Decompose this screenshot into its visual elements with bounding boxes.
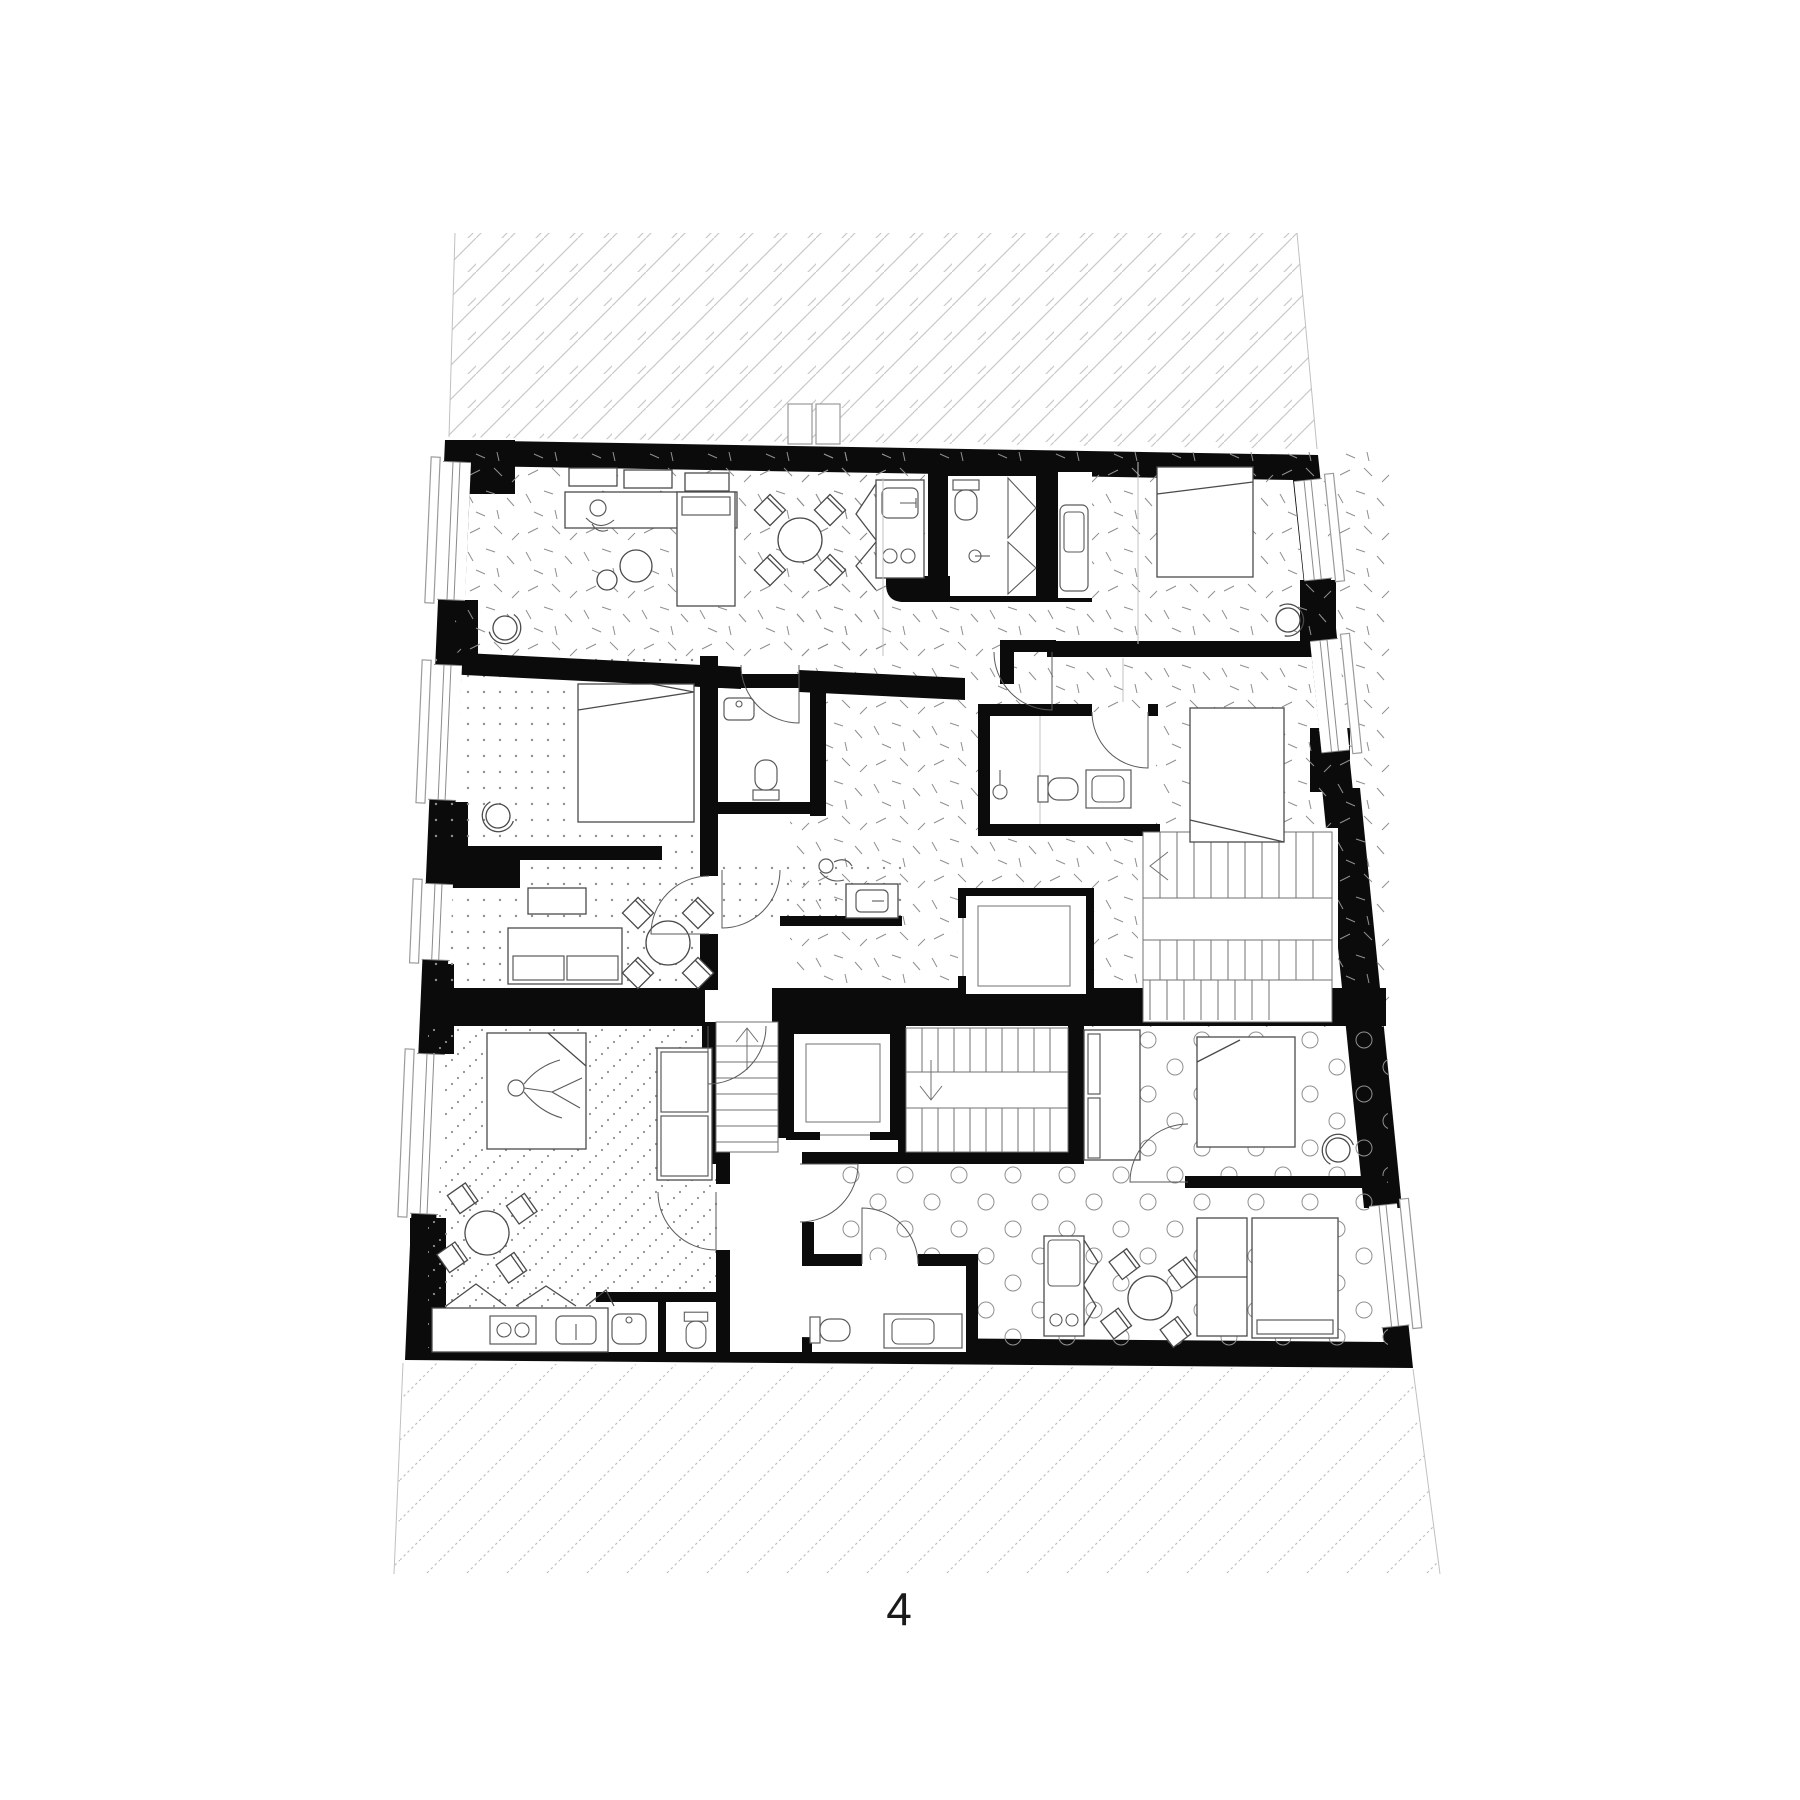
site-hatch-top <box>449 233 1317 449</box>
window-balcony <box>398 1049 445 1219</box>
vanity <box>1086 770 1131 808</box>
desk-wardrobe <box>1197 1218 1247 1336</box>
pouf-small <box>597 570 617 590</box>
window-balcony <box>410 879 454 965</box>
elevator-1 <box>958 888 1094 1002</box>
washbasin <box>612 1314 646 1344</box>
kitchenette <box>846 884 898 918</box>
stair-core-2b <box>906 1028 1068 1152</box>
stair-core-1 <box>1143 832 1332 1022</box>
pouf <box>620 550 652 582</box>
elevator-2 <box>786 1026 898 1140</box>
washbasin <box>724 698 754 720</box>
site-hatch-bottom <box>394 1363 1440 1574</box>
single-bed <box>1252 1218 1338 1338</box>
floor-number-label: 4 <box>886 1583 912 1635</box>
washing-machine <box>1060 505 1088 591</box>
window-balcony <box>425 457 471 605</box>
vanity <box>884 1314 962 1348</box>
coffee-table <box>528 888 586 914</box>
double-bed <box>1197 1037 1295 1147</box>
wardrobe <box>657 1048 712 1180</box>
double-bed <box>578 684 694 822</box>
toilet-icon <box>810 1317 850 1343</box>
toilet-icon <box>753 760 779 800</box>
toilet-icon <box>953 480 979 520</box>
window-balcony <box>416 660 462 805</box>
double-bed <box>1157 467 1253 577</box>
closet <box>1084 1030 1140 1160</box>
bedroom-right-2 <box>1190 708 1284 842</box>
sofa <box>508 928 622 984</box>
floor-plan-page: 4 <box>0 0 1800 1800</box>
single-bed <box>677 492 735 606</box>
double-bed <box>1190 708 1284 842</box>
corridor-lower <box>730 1162 802 1352</box>
stair-core-2a <box>716 1022 778 1152</box>
double-bed <box>487 1033 586 1149</box>
floor-plan-canvas: 4 <box>0 0 1800 1800</box>
toilet-icon <box>1038 776 1078 802</box>
toilet-icon <box>684 1312 707 1348</box>
